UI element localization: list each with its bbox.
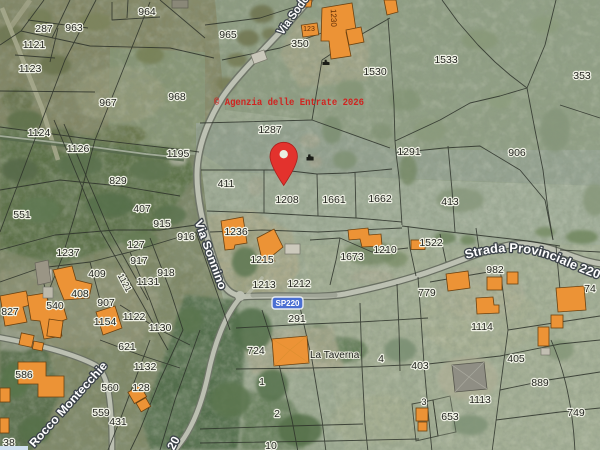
svg-text:409: 409 (88, 268, 106, 280)
svg-text:1213: 1213 (252, 279, 276, 291)
svg-text:540: 540 (46, 300, 64, 312)
svg-text:1673: 1673 (340, 251, 364, 263)
svg-text:1662: 1662 (368, 193, 392, 205)
svg-text:1131: 1131 (137, 276, 160, 288)
svg-text:4: 4 (378, 353, 384, 365)
svg-text:1124: 1124 (28, 127, 51, 139)
svg-text:3: 3 (421, 397, 426, 407)
svg-text:1121: 1121 (23, 39, 46, 51)
svg-text:411: 411 (218, 178, 235, 190)
svg-text:1215: 1215 (250, 254, 274, 266)
svg-text:1212: 1212 (287, 278, 311, 290)
svg-text:La Taverna: La Taverna (310, 350, 360, 361)
svg-text:287: 287 (35, 23, 53, 35)
svg-text:127: 127 (127, 239, 145, 251)
svg-text:918: 918 (157, 267, 175, 279)
svg-text:586: 586 (15, 369, 33, 381)
svg-text:1230: 1230 (329, 9, 339, 28)
svg-text:889: 889 (531, 377, 549, 389)
svg-text:1114: 1114 (471, 321, 493, 333)
svg-text:10: 10 (265, 440, 277, 450)
svg-text:915: 915 (153, 218, 171, 230)
svg-text:559: 559 (92, 407, 110, 419)
svg-text:1236: 1236 (224, 226, 248, 238)
svg-text:403: 403 (411, 360, 429, 372)
svg-text:408: 408 (71, 288, 89, 300)
svg-text:1122: 1122 (123, 311, 146, 323)
svg-text:1132: 1132 (134, 361, 157, 373)
svg-text:1: 1 (259, 376, 265, 388)
svg-text:907: 907 (97, 297, 115, 309)
svg-text:1210: 1210 (373, 244, 397, 256)
svg-text:621: 621 (118, 341, 136, 353)
svg-text:916: 916 (177, 231, 195, 243)
svg-text:963: 963 (65, 22, 83, 34)
svg-text:749: 749 (567, 407, 585, 419)
svg-text:431: 431 (109, 416, 127, 428)
svg-text:965: 965 (219, 29, 237, 41)
svg-text:407: 407 (133, 203, 151, 215)
svg-text:829: 829 (109, 175, 127, 187)
svg-text:560: 560 (101, 382, 119, 394)
svg-text:123: 123 (303, 26, 315, 33)
svg-text:1154: 1154 (94, 316, 117, 328)
svg-text:405: 405 (507, 353, 525, 365)
svg-text:1123: 1123 (19, 63, 42, 75)
svg-text:1533: 1533 (434, 54, 458, 66)
svg-text:1287: 1287 (258, 124, 282, 136)
svg-text:967: 967 (99, 97, 117, 109)
svg-text:827: 827 (1, 306, 19, 318)
svg-text:779: 779 (418, 287, 436, 299)
svg-text:982: 982 (486, 264, 504, 276)
svg-text:906: 906 (508, 147, 526, 159)
svg-text:1130: 1130 (149, 322, 172, 334)
svg-text:968: 968 (168, 91, 186, 103)
svg-text:SP220: SP220 (275, 299, 300, 308)
svg-text:964: 964 (138, 6, 156, 18)
svg-text:© Agenzia delle Entrate 2026: © Agenzia delle Entrate 2026 (214, 97, 364, 109)
svg-text:1522: 1522 (419, 237, 443, 249)
svg-text:291: 291 (288, 313, 306, 325)
svg-text:724: 724 (247, 345, 265, 357)
svg-text:128: 128 (132, 382, 150, 394)
svg-text:413: 413 (441, 196, 459, 208)
svg-text:1661: 1661 (322, 194, 346, 206)
svg-text:1126: 1126 (67, 143, 90, 155)
svg-text:1113: 1113 (469, 394, 491, 406)
svg-text:1237: 1237 (56, 247, 80, 259)
svg-text:1530: 1530 (363, 66, 387, 78)
svg-text:350: 350 (291, 38, 309, 50)
svg-text:551: 551 (13, 209, 31, 221)
svg-text:917: 917 (130, 255, 148, 267)
svg-text:653: 653 (441, 411, 459, 423)
svg-text:1208: 1208 (275, 194, 299, 206)
svg-text:1195: 1195 (167, 148, 190, 160)
svg-text:1291: 1291 (397, 146, 421, 158)
svg-text:74: 74 (584, 283, 596, 295)
svg-text:2: 2 (274, 408, 280, 420)
svg-text:353: 353 (573, 70, 591, 82)
